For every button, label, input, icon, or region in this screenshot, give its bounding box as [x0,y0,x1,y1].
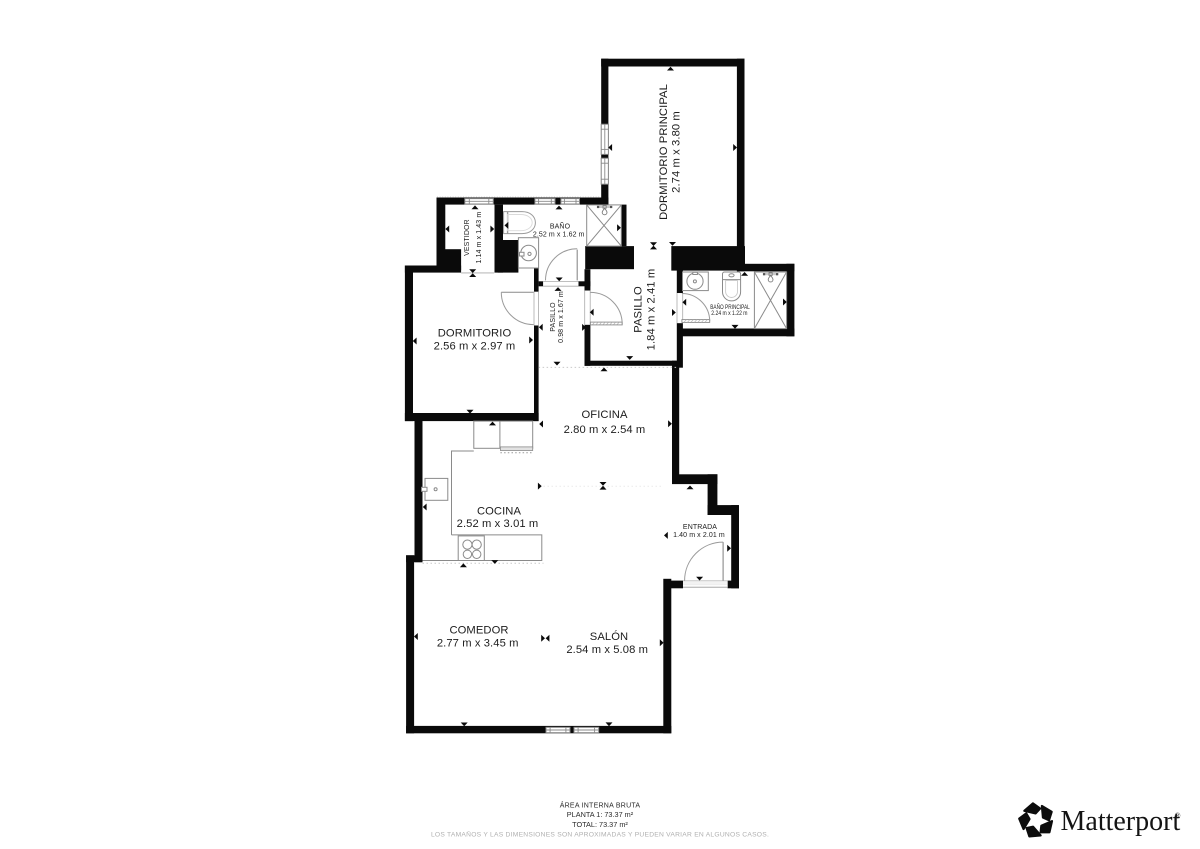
svg-text:1.40 m x 2.01 m: 1.40 m x 2.01 m [673,532,725,539]
svg-text:PASILLO: PASILLO [633,286,645,333]
svg-text:ÁREA INTERNA BRUTA: ÁREA INTERNA BRUTA [560,801,641,810]
svg-text:DORMITORIO: DORMITORIO [438,328,512,340]
svg-text:2.52 m x 1.62 m: 2.52 m x 1.62 m [533,232,585,239]
svg-text:DORMITORIO PRINCIPAL: DORMITORIO PRINCIPAL [658,84,670,220]
svg-text:SALÓN: SALÓN [590,630,628,643]
svg-text:BAÑO: BAÑO [550,221,571,230]
svg-text:PLANTA 1: 73.37 m²: PLANTA 1: 73.37 m² [567,810,634,819]
svg-text:ENTRADA: ENTRADA [683,524,717,531]
svg-text:®: ® [1175,812,1181,821]
svg-text:OFICINA: OFICINA [581,409,628,421]
svg-text:1.84 m x 2.41 m: 1.84 m x 2.41 m [646,269,658,351]
svg-text:2.77 m x 3.45 m: 2.77 m x 3.45 m [437,637,519,649]
svg-text:2.56 m x 2.97 m: 2.56 m x 2.97 m [434,340,516,352]
svg-text:COCINA: COCINA [477,505,522,517]
svg-text:1.14 m x 1.43 m: 1.14 m x 1.43 m [476,212,483,264]
svg-text:TOTAL: 73.37 m²: TOTAL: 73.37 m² [572,820,628,829]
svg-text:2.80 m x 2.54 m: 2.80 m x 2.54 m [564,424,646,436]
svg-text:Matterport: Matterport [1061,806,1181,837]
svg-text:LOS TAMAÑOS Y LAS DIMENSIONES: LOS TAMAÑOS Y LAS DIMENSIONES SON APROXI… [431,830,769,839]
svg-text:2.52 m x 3.01 m: 2.52 m x 3.01 m [457,518,539,530]
svg-text:2.74 m x 3.80 m: 2.74 m x 3.80 m [671,111,683,193]
svg-text:0.98 m x 1.67 m: 0.98 m x 1.67 m [558,291,565,343]
svg-text:PASILLO: PASILLO [550,302,557,332]
svg-text:VESTIDOR: VESTIDOR [464,219,471,256]
svg-text:COMEDOR: COMEDOR [449,625,508,637]
svg-text:2.24 m x 1.22 m: 2.24 m x 1.22 m [711,310,747,317]
svg-text:2.54 m x 5.08 m: 2.54 m x 5.08 m [566,644,648,656]
